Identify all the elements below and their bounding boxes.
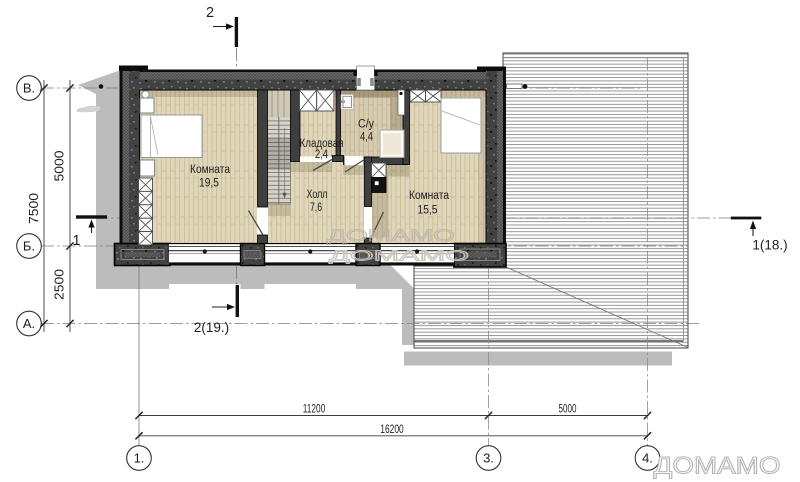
svg-text:ДОМАМО: ДОМАМО	[654, 453, 781, 480]
svg-text:16200: 16200	[380, 424, 404, 436]
svg-text:ДОМАМО: ДОМАМО	[329, 248, 469, 265]
svg-text:ДОМАМО: ДОМАМО	[327, 227, 455, 245]
svg-text:7500: 7500	[27, 193, 41, 224]
svg-text:2,4: 2,4	[315, 149, 328, 161]
svg-text:1.: 1.	[134, 451, 145, 466]
svg-text:11200: 11200	[303, 404, 326, 416]
svg-text:15,5: 15,5	[418, 205, 438, 217]
svg-text:2: 2	[206, 5, 214, 21]
svg-text:19,5: 19,5	[199, 178, 219, 190]
svg-text:3.: 3.	[483, 451, 494, 466]
svg-text:Комната: Комната	[190, 164, 231, 176]
svg-text:1(18.): 1(18.)	[752, 238, 787, 253]
svg-text:7,6: 7,6	[310, 202, 322, 214]
svg-text:5000: 5000	[53, 150, 67, 181]
svg-text:2500: 2500	[53, 269, 67, 300]
svg-text:5000: 5000	[559, 404, 577, 416]
svg-text:Холл: Холл	[307, 189, 328, 201]
svg-text:1: 1	[72, 233, 80, 249]
svg-text:С/у: С/у	[358, 119, 374, 131]
svg-text:Комната: Комната	[409, 190, 450, 202]
svg-text:4.: 4.	[642, 451, 653, 466]
svg-text:2(19.): 2(19.)	[194, 320, 229, 335]
svg-text:4,4: 4,4	[360, 132, 373, 144]
svg-text:А.: А.	[23, 316, 35, 331]
svg-text:В.: В.	[23, 81, 35, 96]
svg-text:Б.: Б.	[23, 239, 35, 254]
